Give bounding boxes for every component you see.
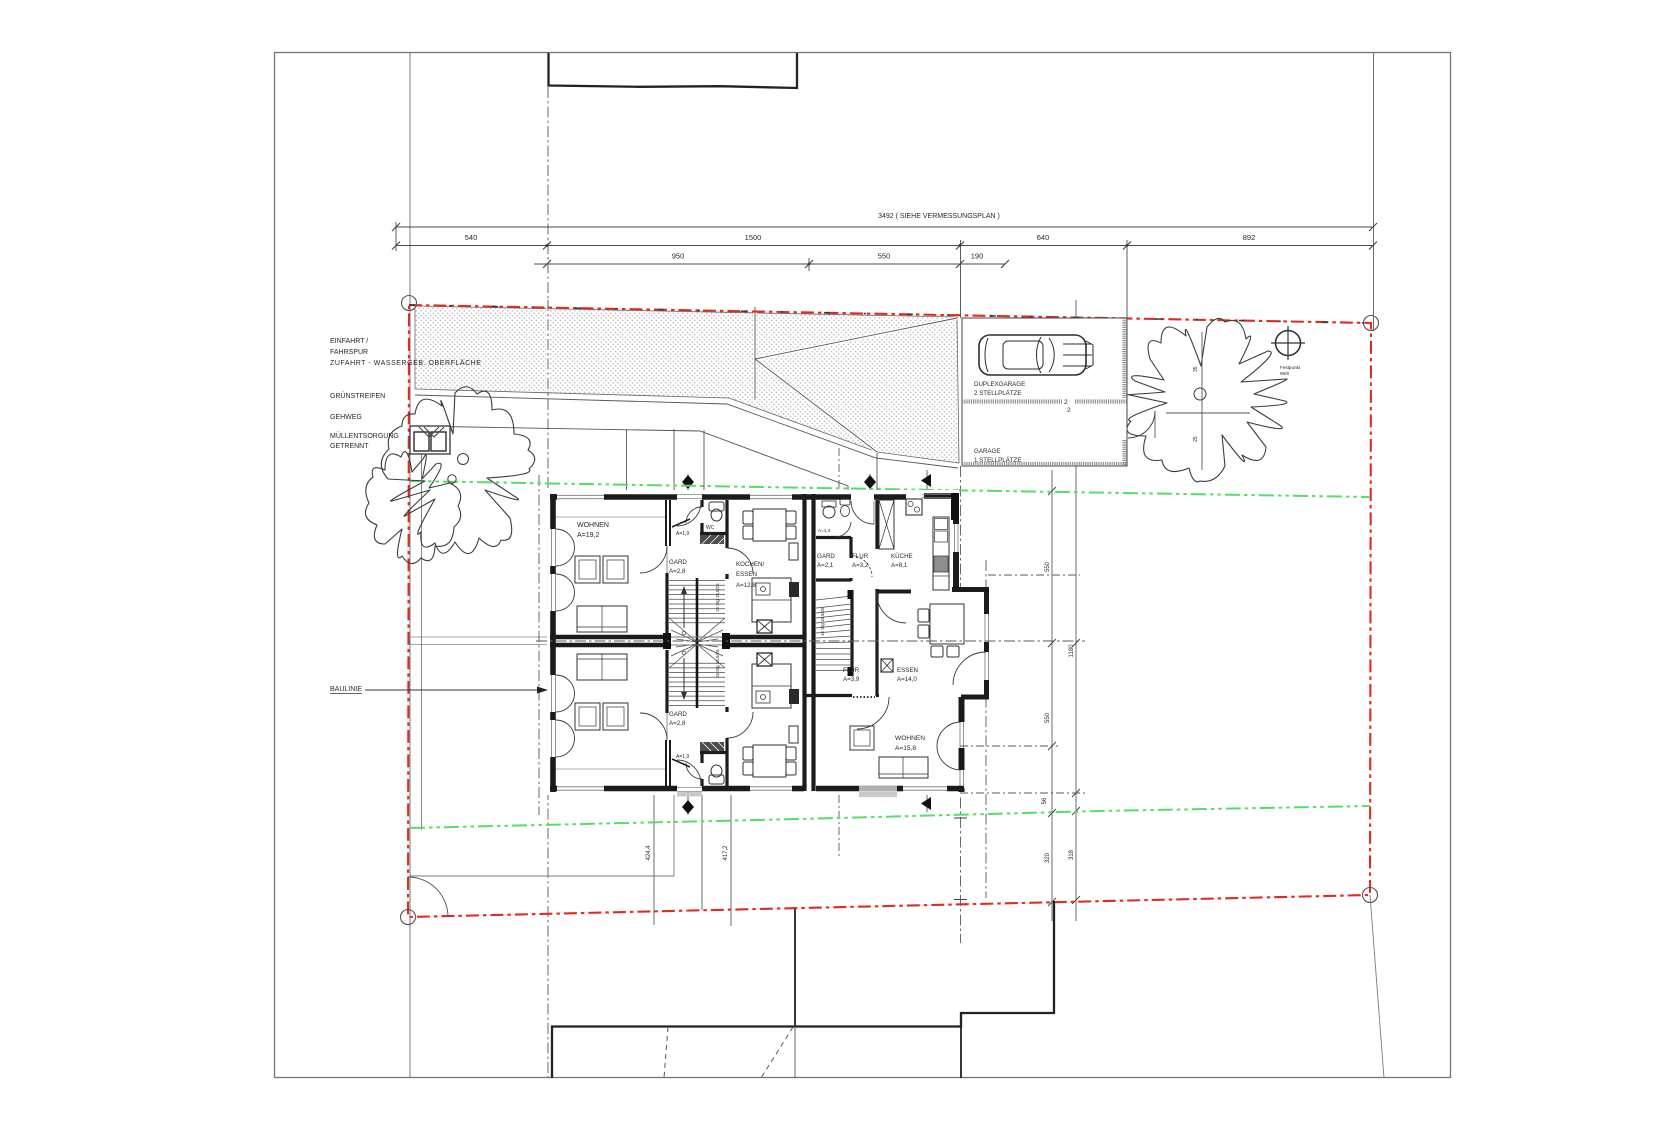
svg-text:1500: 1500 — [745, 233, 762, 242]
svg-text:550: 550 — [1045, 712, 1051, 723]
svg-text:ESSEN: ESSEN — [897, 667, 918, 674]
svg-text:GARD: GARD — [669, 711, 687, 718]
svg-text:2 STELLPLÄTZE: 2 STELLPLÄTZE — [974, 390, 1021, 397]
svg-text:A=1,4: A=1,4 — [818, 528, 831, 533]
svg-text:640: 640 — [1037, 233, 1050, 242]
svg-text:1 STELLPLÄTZE: 1 STELLPLÄTZE — [974, 457, 1021, 464]
svg-text:95/8: 95/8 — [1280, 371, 1289, 376]
svg-text:MÜLLENTSORGUNG: MÜLLENTSORGUNG — [330, 432, 399, 440]
svg-text:GEHWEG: GEHWEG — [330, 414, 362, 421]
svg-text:2: 2 — [1067, 407, 1071, 414]
svg-text:GRÜNSTREIFEN: GRÜNSTREIFEN — [330, 392, 385, 400]
svg-text:A=8,1: A=8,1 — [891, 562, 908, 569]
svg-text:A=12,8: A=12,8 — [736, 582, 756, 589]
svg-text:FLUR: FLUR — [843, 667, 860, 674]
svg-text:A=3,9: A=3,9 — [843, 676, 860, 683]
svg-text:KOCHEN/: KOCHEN/ — [736, 561, 764, 568]
svg-text:BAULINIE: BAULINIE — [330, 686, 362, 693]
svg-text:318: 318 — [1069, 849, 1075, 860]
svg-text:16 Stg 18,5/25: 16 Stg 18,5/25 — [820, 607, 825, 636]
svg-text:1180: 1180 — [1069, 644, 1075, 658]
svg-text:EINFAHRT /: EINFAHRT / — [330, 338, 368, 345]
svg-text:WOHNEN: WOHNEN — [895, 735, 925, 742]
svg-text:25: 25 — [1193, 436, 1199, 442]
svg-text:15 Stg 18,5/25: 15 Stg 18,5/25 — [715, 583, 720, 612]
svg-text:A=19,2: A=19,2 — [577, 532, 599, 539]
svg-text:GARAGE: GARAGE — [974, 448, 1000, 455]
svg-text:KÜCHE: KÜCHE — [891, 553, 913, 560]
svg-text:FAHRSPUR: FAHRSPUR — [330, 349, 368, 356]
svg-text:417,2: 417,2 — [723, 845, 729, 861]
svg-text:A=1,9: A=1,9 — [676, 531, 689, 537]
svg-text:A=3,2: A=3,2 — [852, 562, 869, 569]
svg-text:550: 550 — [1045, 561, 1051, 572]
svg-text:190: 190 — [971, 252, 984, 261]
svg-text:A=2,1: A=2,1 — [817, 562, 834, 569]
svg-text:WC: WC — [706, 525, 715, 531]
svg-text:FLUR: FLUR — [852, 553, 869, 560]
svg-text:424,4: 424,4 — [646, 845, 652, 861]
svg-text:3492 ( SIEHE VERMESSUNGSPLAN ): 3492 ( SIEHE VERMESSUNGSPLAN ) — [878, 213, 1000, 220]
svg-text:320: 320 — [1045, 852, 1051, 863]
svg-text:ZUFAHRT - WASSERGEB. OBERFLÄCH: ZUFAHRT - WASSERGEB. OBERFLÄCHE — [330, 359, 482, 367]
svg-text:550: 550 — [878, 252, 891, 261]
svg-text:15 Stg 18,5/25: 15 Stg 18,5/25 — [715, 649, 720, 678]
svg-text:A=14,0: A=14,0 — [897, 676, 917, 683]
svg-text:ESSEN: ESSEN — [736, 571, 757, 578]
svg-text:892: 892 — [1243, 233, 1256, 242]
svg-text:A=2,8: A=2,8 — [669, 720, 686, 727]
svg-text:DUPLEXGARAGE: DUPLEXGARAGE — [974, 381, 1025, 388]
svg-text:A=1,9: A=1,9 — [676, 754, 689, 760]
svg-text:540: 540 — [465, 233, 478, 242]
svg-text:Festpunkt: Festpunkt — [1280, 365, 1301, 370]
svg-text:56: 56 — [1042, 797, 1048, 804]
svg-text:2: 2 — [1064, 399, 1068, 406]
svg-text:GARD: GARD — [817, 553, 835, 560]
svg-text:950: 950 — [672, 252, 685, 261]
svg-text:WOHNEN: WOHNEN — [577, 522, 609, 529]
svg-text:GETRENNT: GETRENNT — [330, 443, 369, 450]
svg-text:A=2,8: A=2,8 — [669, 568, 686, 575]
svg-text:35: 35 — [1193, 366, 1199, 372]
svg-text:GARD: GARD — [669, 559, 687, 566]
svg-text:A=15,8: A=15,8 — [895, 745, 916, 752]
